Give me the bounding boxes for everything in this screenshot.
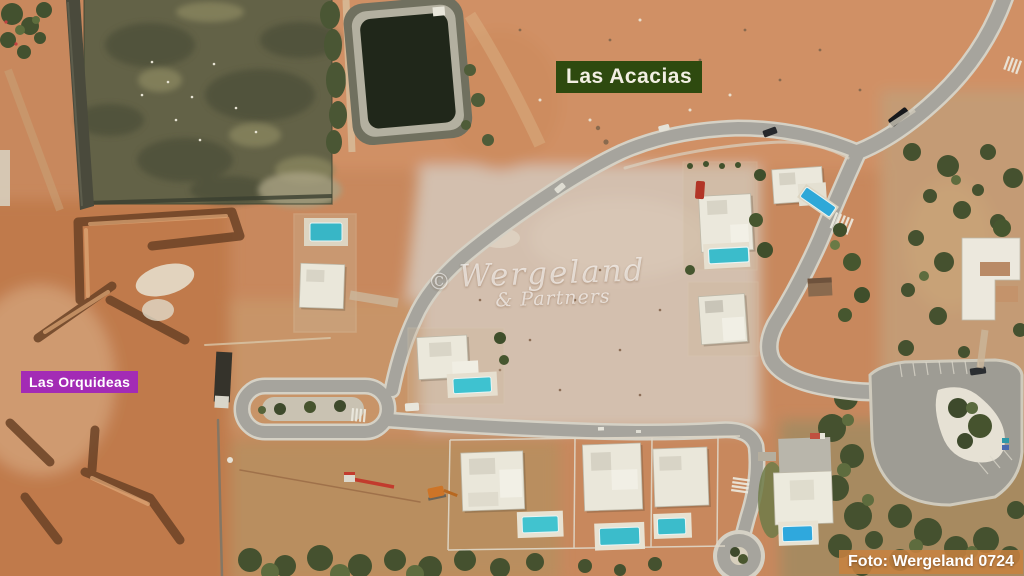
- aerial-photo-stage: © Wergeland & Partners Las Acacias Las O…: [0, 0, 1024, 576]
- label-las-acacias: Las Acacias: [556, 61, 702, 93]
- sports-field: [76, 0, 342, 208]
- villa-bottom-2: [582, 443, 646, 551]
- watermark: © Wergeland & Partners: [427, 252, 647, 314]
- loop-median: [258, 397, 364, 421]
- cul-de-sac: [713, 530, 765, 576]
- villa-bottom-3: [651, 447, 712, 539]
- photo-credit: Foto: Wergeland 0724: [839, 550, 1023, 574]
- reservoir-pond: [342, 0, 474, 147]
- villa-loop-north: [408, 328, 509, 404]
- label-las-orquideas: Las Orquideas: [21, 371, 138, 393]
- copyright-icon: ©: [427, 269, 451, 296]
- parking-area: [870, 360, 1022, 505]
